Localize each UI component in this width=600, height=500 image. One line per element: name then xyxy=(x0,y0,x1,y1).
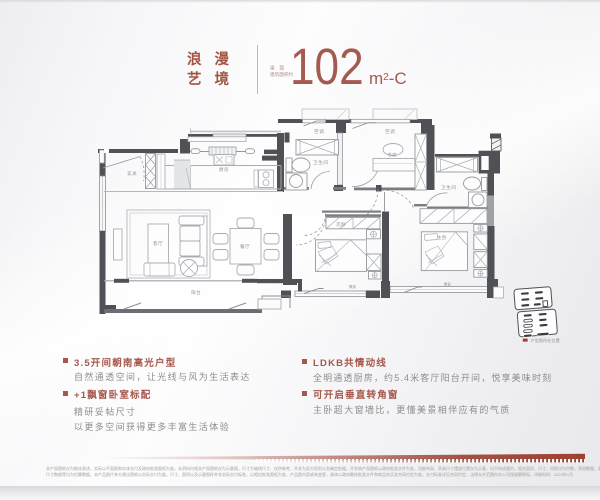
svg-text:次卧: 次卧 xyxy=(336,221,346,228)
svg-text:厨房: 厨房 xyxy=(219,166,229,173)
svg-text:卫生间: 卫生间 xyxy=(313,159,328,166)
svg-text:卫生间: 卫生间 xyxy=(441,184,456,191)
svg-text:客厅: 客厅 xyxy=(153,240,163,247)
svg-text:飘窗: 飘窗 xyxy=(444,282,451,287)
svg-text:阳台: 阳台 xyxy=(191,289,201,296)
svg-text:主卧: 主卧 xyxy=(437,234,447,241)
svg-text:书房: 书房 xyxy=(387,152,397,159)
svg-text:户型图所在位置: 户型图所在位置 xyxy=(531,337,560,344)
svg-text:玄关: 玄关 xyxy=(127,170,137,177)
svg-text:餐厅: 餐厅 xyxy=(240,243,250,250)
svg-text:飘窗: 飘窗 xyxy=(349,284,356,289)
svg-text:空调: 空调 xyxy=(385,128,395,135)
svg-text:空调: 空调 xyxy=(314,128,324,135)
